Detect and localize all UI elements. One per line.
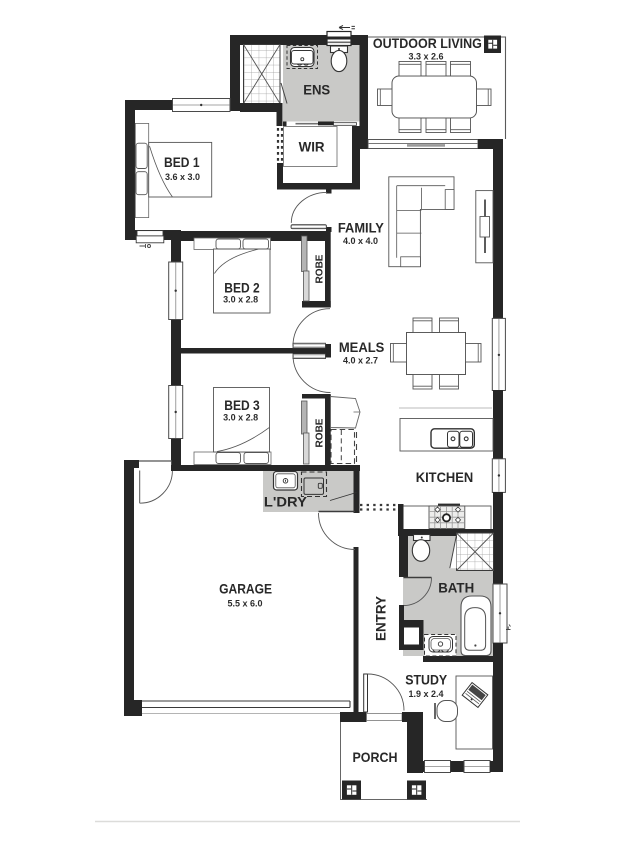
svg-text:3.0 x 2.8: 3.0 x 2.8: [223, 295, 258, 305]
svg-text:GARAGE: GARAGE: [219, 582, 272, 597]
svg-text:ROBE: ROBE: [315, 254, 326, 283]
svg-text:BED 2: BED 2: [224, 281, 260, 296]
svg-text:ENS: ENS: [303, 83, 330, 98]
svg-text:BED 3: BED 3: [224, 398, 260, 413]
svg-text:BED 1: BED 1: [164, 155, 200, 170]
svg-text:BATH: BATH: [438, 581, 474, 596]
svg-text:OUTDOOR LIVING: OUTDOOR LIVING: [373, 36, 482, 51]
svg-text:3.3 x 2.6: 3.3 x 2.6: [408, 52, 443, 62]
svg-text:ENTRY: ENTRY: [374, 596, 389, 641]
svg-text:KITCHEN: KITCHEN: [416, 470, 474, 485]
svg-text:L'DRY: L'DRY: [264, 495, 307, 510]
svg-text:ROBE: ROBE: [315, 418, 326, 447]
svg-text:PORCH: PORCH: [353, 750, 398, 765]
svg-text:1.9 x 2.4: 1.9 x 2.4: [408, 689, 443, 699]
svg-text:3.0 x 2.8: 3.0 x 2.8: [223, 413, 258, 423]
svg-text:3.6 x 3.0: 3.6 x 3.0: [165, 172, 200, 182]
svg-text:FAMILY: FAMILY: [338, 221, 384, 236]
svg-text:STUDY: STUDY: [405, 673, 447, 688]
svg-text:4.0 x 2.7: 4.0 x 2.7: [343, 356, 378, 366]
svg-text:4.0 x 4.0: 4.0 x 4.0: [343, 236, 378, 246]
svg-text:5.5 x 6.0: 5.5 x 6.0: [227, 599, 262, 609]
svg-text:MEALS: MEALS: [339, 340, 385, 355]
svg-text:WIR: WIR: [299, 140, 325, 155]
